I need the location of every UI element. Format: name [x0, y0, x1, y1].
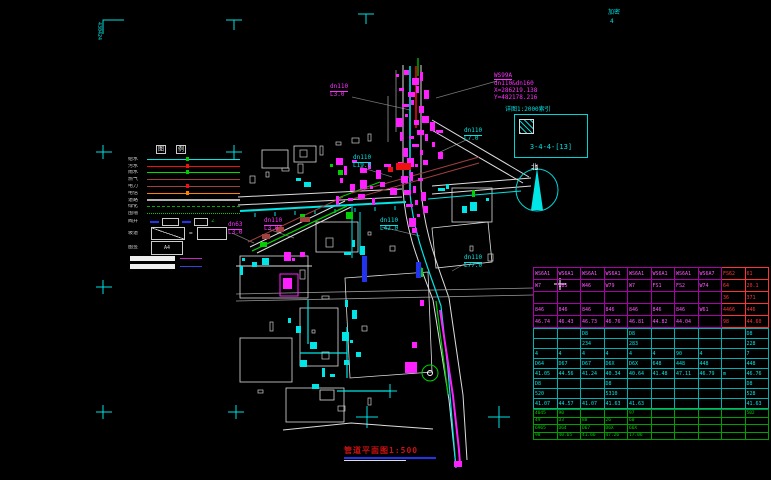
table-cell — [557, 389, 581, 399]
table-row: 6965D64D67D6X66X — [534, 425, 769, 433]
table-cell: FS2 — [675, 280, 699, 292]
road-lines — [236, 65, 531, 468]
table-row: 41.0744.5741.0741.6341.6341.63 — [534, 399, 769, 409]
magenta-pipe-line — [440, 310, 460, 464]
drawing-title-block: 管道平面图1:500 — [344, 445, 439, 461]
blue-line-icon — [180, 266, 202, 267]
map-label: L3.0 — [330, 92, 344, 98]
table-cell — [745, 432, 769, 440]
table-cell — [604, 410, 628, 418]
map-label: L42.0 — [380, 226, 398, 232]
legend-line-sample — [147, 172, 240, 173]
sheet-size-box: A4 — [151, 241, 183, 255]
legend-line-tick — [186, 170, 189, 174]
table-cell: W7 — [534, 280, 558, 292]
table-row: 234283228 — [534, 339, 769, 349]
legend-row-label: 电信 — [128, 191, 147, 196]
table-cell — [557, 379, 581, 389]
table-cell — [722, 329, 746, 339]
table-cell: 7 — [745, 349, 769, 359]
map-label: L3.0 — [264, 226, 278, 232]
table-cell — [698, 425, 722, 433]
table-cell — [675, 339, 699, 349]
table-cell: D3 — [557, 417, 581, 425]
node-block-cyan: D8D8D82342832284444449047D64D67D67D6XD6X… — [533, 328, 769, 409]
index-box-label: 详图1:2000索引 — [505, 104, 551, 113]
table-cell: 98 — [534, 432, 558, 440]
table-cell: 446 — [745, 304, 769, 316]
table-cell — [534, 339, 558, 349]
legend-line-sample — [147, 159, 240, 160]
white-bar-icon — [130, 264, 175, 269]
legend-line-sample — [147, 199, 240, 201]
table-row: 5205310528 — [534, 389, 769, 399]
angle-glyph-icon: ∠ — [211, 219, 215, 225]
legend-row-label: 雨水 — [128, 170, 147, 175]
table-cell: 846 — [675, 304, 699, 316]
table-cell — [698, 329, 722, 339]
table-cell: D8 — [628, 329, 652, 339]
legend-row-label: 绿化 — [128, 204, 147, 209]
table-cell: 4 — [604, 349, 628, 359]
table-cell: 528 — [745, 389, 769, 399]
table-cell: 41.07 — [581, 399, 605, 409]
table-cell — [534, 292, 558, 304]
table-cell — [604, 339, 628, 349]
table-cell: D8 — [745, 379, 769, 389]
legend-row-label: 给水 — [128, 157, 147, 162]
table-cell — [651, 432, 675, 440]
table-cell — [675, 379, 699, 389]
table-cell — [651, 399, 675, 409]
valve-dash-icon — [150, 221, 159, 223]
table-cell: 4466 — [722, 304, 746, 316]
map-label: 加密 — [608, 10, 620, 16]
table-cell — [557, 292, 581, 304]
table-cell — [698, 379, 722, 389]
tree-circle-center — [428, 371, 433, 376]
table-row: 49D3882660 — [534, 417, 769, 425]
table-cell: W7 — [628, 280, 652, 292]
table-cell — [722, 410, 746, 418]
table-cell — [722, 399, 746, 409]
table-cell: m — [722, 369, 746, 379]
legend-header-col2: 例 — [176, 145, 186, 154]
table-cell — [628, 379, 652, 389]
table-row: D8D8D8 — [534, 379, 769, 389]
legend-row-label: 围墙 — [128, 211, 147, 216]
table-cell: 26 — [604, 417, 628, 425]
table-row: WS6A1WS6A1WS6A1WS6A1WS6A1WS6A1WS6A1WS6A7… — [534, 268, 769, 280]
legend-row-label: 燃气 — [128, 177, 147, 182]
legend-line-tick — [186, 157, 189, 161]
table-cell: W74 — [698, 280, 722, 292]
table-cell: 88 — [581, 417, 605, 425]
hatch-square-icon — [519, 119, 534, 134]
table-cell: W61 — [698, 304, 722, 316]
node-id-label: WS99A — [494, 72, 512, 80]
map-label: L3.0 — [228, 230, 242, 236]
table-cell: 44.60 — [745, 316, 769, 328]
table-cell — [722, 359, 746, 369]
legend-sheet-label: 图签 — [128, 245, 147, 250]
y-coordinate: Y=482178.216 — [494, 94, 537, 101]
legend-line-sample — [147, 186, 240, 187]
map-label: L77.0 — [464, 263, 482, 269]
table-cell: 371 — [745, 292, 769, 304]
table-cell: W46 — [581, 280, 605, 292]
table-cell — [698, 399, 722, 409]
legend-line-tick — [186, 164, 189, 168]
table-cell: 846 — [581, 304, 605, 316]
legend-box-icon — [194, 218, 208, 226]
legend-header: 图 例 — [128, 145, 240, 154]
table-cell: 44.56 — [557, 369, 581, 379]
table-cell: D6X — [604, 425, 628, 433]
table-cell — [675, 425, 699, 433]
legend-row: 给水 — [128, 156, 240, 163]
table-cell: D64 — [534, 359, 558, 369]
table-cell: 46.43 — [557, 316, 581, 328]
table-cell — [557, 339, 581, 349]
table-cell — [651, 389, 675, 399]
legend: 图 例 给水污水雨水燃气电力电信道路绿化围墙 阀井 ∠ 坡道 = 图签 A4 — [128, 145, 240, 273]
table-cell: D67 — [581, 359, 605, 369]
table-cell: 5310 — [604, 389, 628, 399]
table-cell — [722, 417, 746, 425]
table-cell: 41.63 — [628, 399, 652, 409]
legend-row: 污水 — [128, 163, 240, 170]
table-cell: 41.07 — [534, 399, 558, 409]
table-cell — [698, 339, 722, 349]
table-cell — [604, 292, 628, 304]
table-row: 9840.6541.6647.2617.06 — [534, 432, 769, 440]
table-cell: 61 — [745, 268, 769, 280]
drawing-title: 管道平面图1:500 — [344, 445, 439, 456]
table-cell: 520 — [534, 389, 558, 399]
table-cell — [651, 410, 675, 418]
legend-line-sample — [147, 213, 240, 214]
white-bar-icon — [130, 256, 175, 261]
legend-row-label: 道路 — [128, 198, 147, 203]
legend-symbols-label: 阀井 — [128, 219, 147, 224]
legend-line-sample — [147, 166, 240, 167]
table-row: 40459097502 — [534, 410, 769, 418]
legend-line-sample — [147, 206, 240, 207]
table-cell — [722, 379, 746, 389]
legend-slope-label: 坡道 — [128, 231, 147, 236]
table-cell: 6965 — [534, 425, 558, 433]
table-cell — [698, 389, 722, 399]
table-cell: 283 — [628, 339, 652, 349]
table-cell: 46.81 — [628, 316, 652, 328]
table-cell: 47.26 — [604, 432, 628, 440]
table-cell — [698, 432, 722, 440]
x-coordinate: X=286219.138 — [494, 87, 537, 94]
table-row: 41.0544.5641.2440.3440.6441.4847.1146.79… — [534, 369, 769, 379]
table-cell: D8 — [745, 329, 769, 339]
map-label: 4 — [610, 19, 614, 25]
table-row: D8D8D8 — [534, 329, 769, 339]
table-cell — [698, 316, 722, 328]
table-cell: WS6A1 — [675, 268, 699, 280]
table-cell: 228 — [745, 339, 769, 349]
legend-line-sample — [147, 179, 240, 180]
table-cell: 46.76 — [745, 369, 769, 379]
table-cell — [675, 292, 699, 304]
table-cell: 4 — [628, 349, 652, 359]
table-row: 36371 — [534, 292, 769, 304]
table-cell: D6X — [604, 359, 628, 369]
table-cell: 40.64 — [628, 369, 652, 379]
table-cell — [581, 410, 605, 418]
legend-slope-row: 坡道 = — [128, 226, 240, 240]
table-cell: D6X — [628, 359, 652, 369]
table-cell — [698, 417, 722, 425]
legend-row: 燃气 — [128, 176, 240, 183]
legend-bars-row — [128, 255, 240, 273]
table-cell: 98 — [722, 316, 746, 328]
table-cell: 4 — [698, 349, 722, 359]
table-cell — [604, 329, 628, 339]
table-cell: 41.63 — [604, 399, 628, 409]
table-cell: 4 — [534, 349, 558, 359]
north-label: 北 — [531, 162, 538, 172]
table-cell — [745, 425, 769, 433]
table-cell: 41.63 — [745, 399, 769, 409]
table-cell — [651, 425, 675, 433]
table-cell — [722, 349, 746, 359]
table-cell: 36 — [722, 292, 746, 304]
table-row: W7W85W46W79W7FS1FS2W746420.1 — [534, 280, 769, 292]
table-cell: D67 — [557, 359, 581, 369]
leader-lines — [232, 81, 497, 271]
table-cell: 90 — [557, 410, 581, 418]
table-cell — [651, 379, 675, 389]
legend-box-icon — [162, 218, 179, 226]
table-cell: 846 — [628, 304, 652, 316]
table-cell: FS1 — [651, 280, 675, 292]
table-cell — [628, 292, 652, 304]
legend-row: 雨水 — [128, 170, 240, 177]
legend-row: 道路 — [128, 197, 240, 204]
table-cell: D8 — [604, 379, 628, 389]
table-cell: 17.06 — [628, 432, 652, 440]
table-row: 4444449047 — [534, 349, 769, 359]
table-cell: 502 — [745, 410, 769, 418]
table-cell: D64 — [557, 425, 581, 433]
equals-glyph: = — [189, 230, 193, 237]
table-cell: 97 — [628, 410, 652, 418]
magenta-line-icon — [180, 258, 202, 259]
valve-dash-icon — [182, 221, 191, 223]
table-cell — [722, 389, 746, 399]
table-cell: 41.48 — [651, 369, 675, 379]
map-label: L7.0 — [464, 136, 478, 142]
table-cell: FS62 — [722, 268, 746, 280]
table-cell: WS6A7 — [698, 268, 722, 280]
table-cell — [557, 329, 581, 339]
table-cell: D8 — [534, 379, 558, 389]
title-underline-blue — [344, 457, 436, 459]
table-row: D64D67D67D6XD6X648448448448 — [534, 359, 769, 369]
legend-row: 围墙 — [128, 210, 240, 217]
table-cell: 49 — [534, 417, 558, 425]
table-cell: 4 — [581, 349, 605, 359]
table-cell: WS6A1 — [651, 268, 675, 280]
table-cell: 66X — [628, 425, 652, 433]
sheet-index-box[interactable]: 3-4-4-[13] — [514, 114, 588, 158]
table-cell: 4045 — [534, 410, 558, 418]
table-cell: W85 — [557, 280, 581, 292]
table-cell: 4 — [557, 349, 581, 359]
legend-row-label: 污水 — [128, 164, 147, 169]
legend-header-col1: 图 — [156, 145, 166, 154]
table-cell — [698, 410, 722, 418]
table-cell — [581, 292, 605, 304]
table-cell: 846 — [604, 304, 628, 316]
table-cell: 46.79 — [698, 369, 722, 379]
coordinate-annotation: WS99A dn110&dn160 X=286219.138 Y=482178.… — [494, 72, 537, 101]
table-cell: 46.74 — [534, 316, 558, 328]
slope-parallelogram-icon — [151, 227, 185, 240]
cad-canvas[interactable]: 430424 WS99A dn110&dn160 X=286219.138 Y=… — [0, 0, 771, 480]
sheet-index-code: 3-4-4-[13] — [515, 143, 587, 151]
table-cell: 448 — [675, 359, 699, 369]
table-cell — [675, 399, 699, 409]
legend-symbols-row: 阀井 ∠ — [128, 217, 240, 226]
legend-row-label: 电力 — [128, 184, 147, 189]
node-block-green: 4045909750249D38826606965D64D67D6X66X984… — [533, 409, 769, 440]
table-cell: D67 — [581, 425, 605, 433]
table-cell — [651, 292, 675, 304]
table-cell: 846 — [534, 304, 558, 316]
table-cell: 46.73 — [581, 316, 605, 328]
table-row: 46.7446.4346.7346.7646.8144.8244.049844.… — [534, 316, 769, 328]
table-cell: WS6A1 — [604, 268, 628, 280]
table-cell: 47.11 — [675, 369, 699, 379]
table-cell: WS6A1 — [581, 268, 605, 280]
legend-row: 绿化 — [128, 204, 240, 211]
table-cell — [651, 339, 675, 349]
table-cell — [651, 417, 675, 425]
table-cell: 4 — [651, 349, 675, 359]
table-cell — [651, 329, 675, 339]
legend-row: 电力 — [128, 183, 240, 190]
table-cell: 448 — [745, 359, 769, 369]
table-cell — [675, 417, 699, 425]
legend-row: 电信 — [128, 190, 240, 197]
table-cell: 648 — [651, 359, 675, 369]
table-cell — [675, 329, 699, 339]
corner-coordinate-text: 430424 — [96, 22, 101, 40]
table-cell: 20.1 — [745, 280, 769, 292]
table-cell: W79 — [604, 280, 628, 292]
table-cell — [675, 389, 699, 399]
table-cell: 41.05 — [534, 369, 558, 379]
node-block-magenta: WS6A1WS6A1WS6A1WS6A1WS6A1WS6A1WS6A1WS6A7… — [533, 267, 769, 328]
table-cell: 44.82 — [651, 316, 675, 328]
table-cell: WS6A1 — [628, 268, 652, 280]
table-row: 846846846846846846846W614466446 — [534, 304, 769, 316]
legend-sheet-row: 图签 A4 — [128, 240, 240, 255]
table-cell — [722, 425, 746, 433]
map-label: L19.0 — [353, 163, 371, 169]
slope-rect-icon — [197, 227, 227, 240]
table-cell — [581, 389, 605, 399]
table-cell: 846 — [557, 304, 581, 316]
legend-line-tick — [186, 191, 189, 195]
table-cell — [722, 339, 746, 349]
table-cell: 234 — [581, 339, 605, 349]
table-cell — [745, 417, 769, 425]
title-underline-white — [344, 460, 406, 461]
table-cell — [675, 410, 699, 418]
legend-line-sample — [147, 193, 240, 194]
legend-line-tick — [186, 184, 189, 188]
table-cell: 846 — [651, 304, 675, 316]
table-cell: 41.24 — [581, 369, 605, 379]
table-cell: 46.76 — [604, 316, 628, 328]
table-cell: 44.57 — [557, 399, 581, 409]
pipe-spec-label: dn110&dn160 — [494, 80, 534, 87]
table-cell — [675, 432, 699, 440]
table-cell: 40.34 — [604, 369, 628, 379]
table-cell: D8 — [581, 329, 605, 339]
table-cell: WS6A1 — [557, 268, 581, 280]
tree-circle — [422, 365, 438, 381]
table-cell — [534, 329, 558, 339]
table-cell: 60 — [628, 417, 652, 425]
table-cell: 448 — [698, 359, 722, 369]
table-cell — [581, 379, 605, 389]
table-cell: 90 — [675, 349, 699, 359]
table-cell: 40.65 — [557, 432, 581, 440]
table-cell: WS6A1 — [534, 268, 558, 280]
pipe-node-table: WS6A1WS6A1WS6A1WS6A1WS6A1WS6A1WS6A1WS6A7… — [533, 267, 769, 440]
table-cell — [628, 389, 652, 399]
table-cell: 64 — [722, 280, 746, 292]
table-cell: 44.04 — [675, 316, 699, 328]
table-cell — [698, 292, 722, 304]
table-cell — [722, 432, 746, 440]
table-cell: 41.66 — [581, 432, 605, 440]
